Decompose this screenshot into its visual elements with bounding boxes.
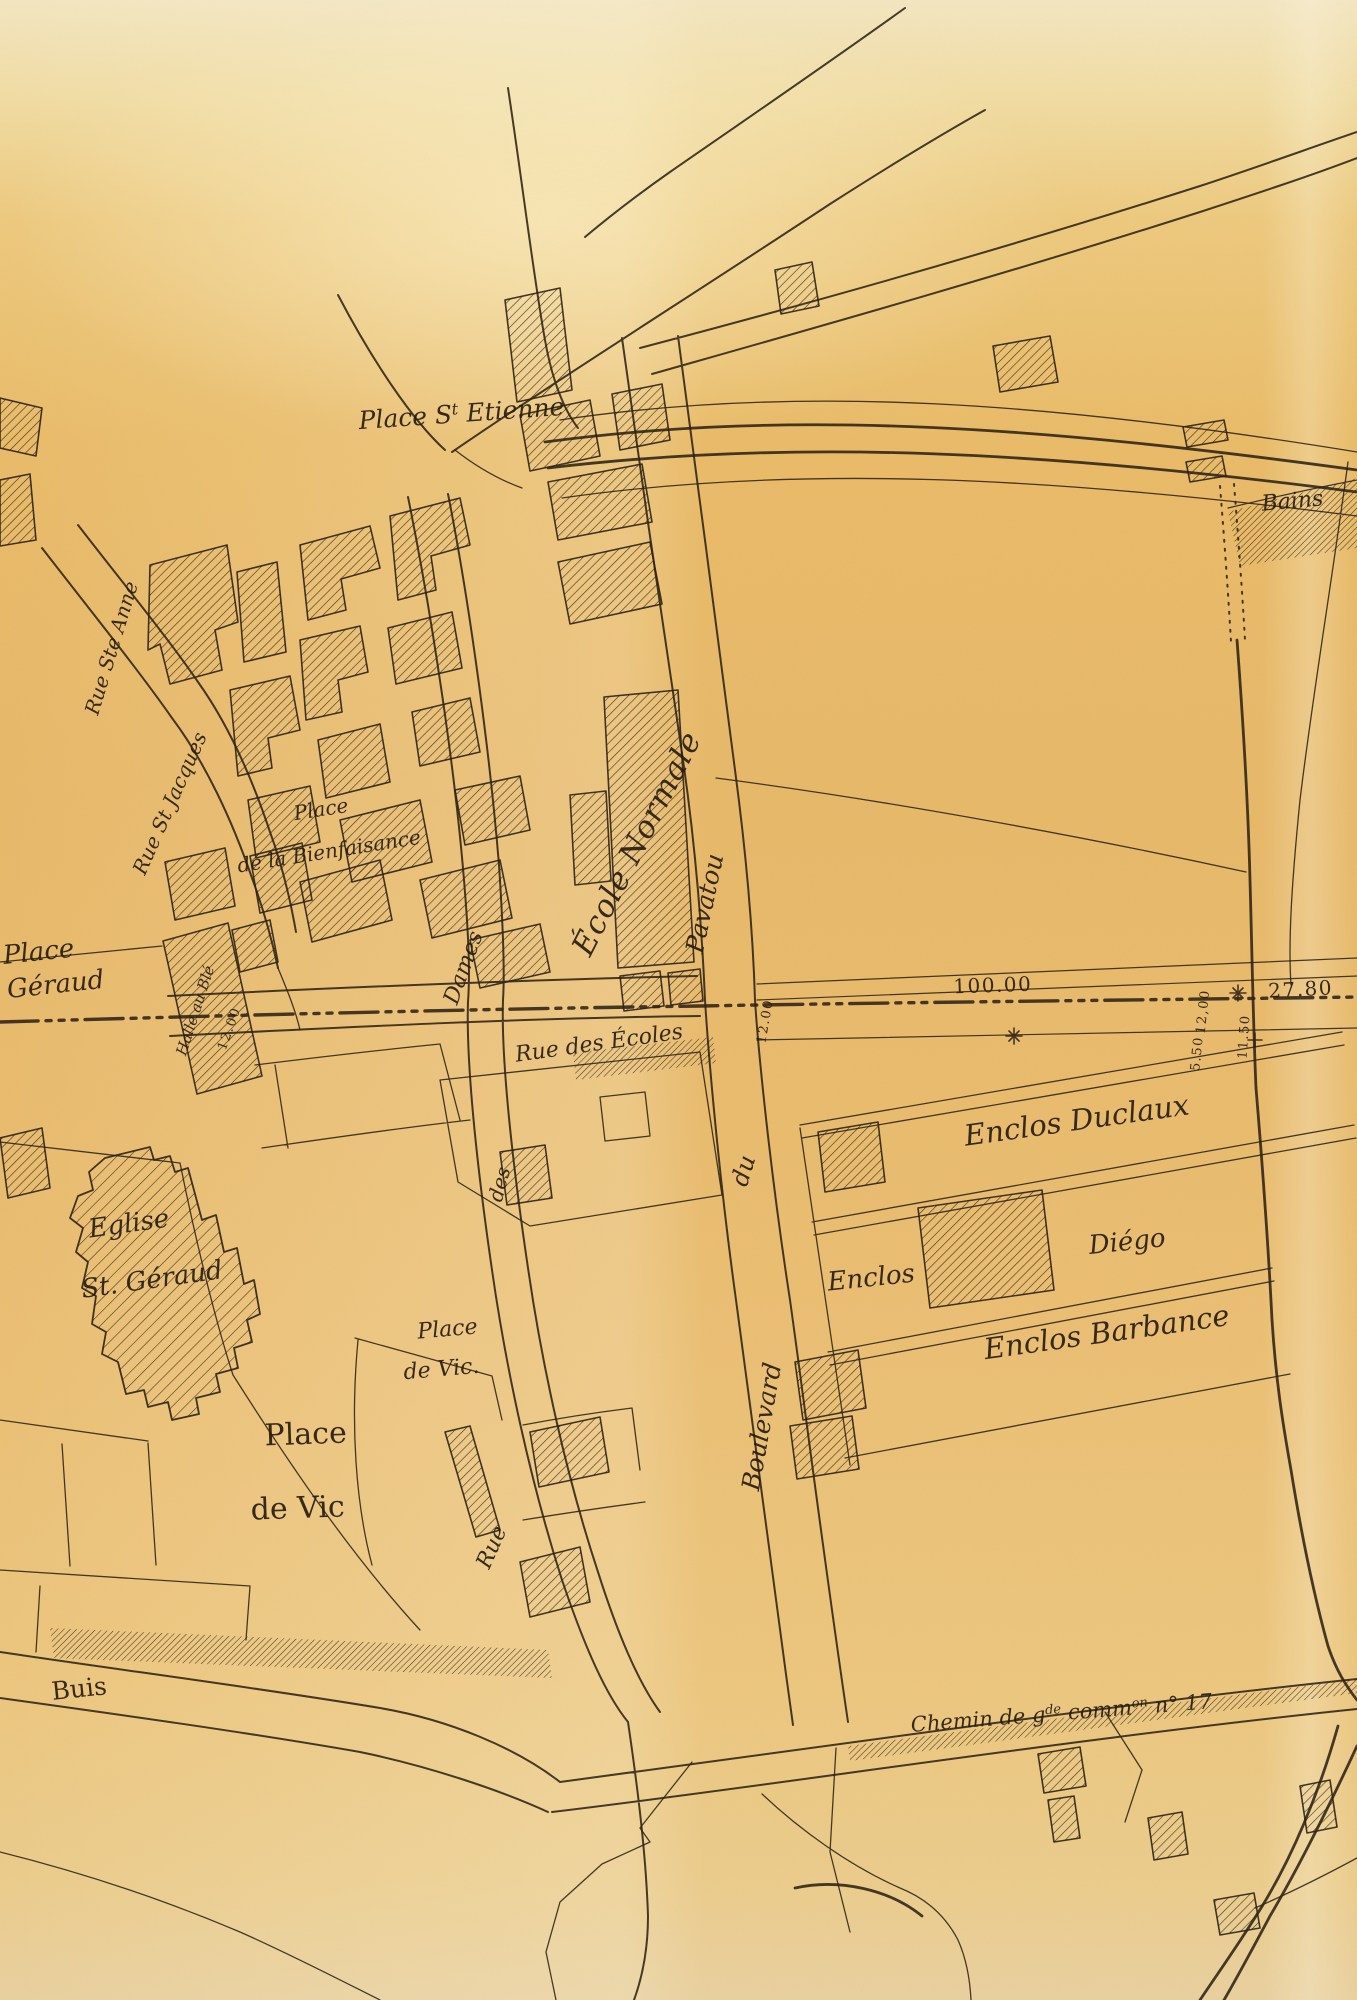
- map-canvas: Place St Etienne Bains Rue Ste Anne Rue …: [0, 0, 1357, 2000]
- paper-grain-texture: [0, 0, 1357, 2000]
- map-drawing: Place St Etienne Bains Rue Ste Anne Rue …: [0, 0, 1357, 2000]
